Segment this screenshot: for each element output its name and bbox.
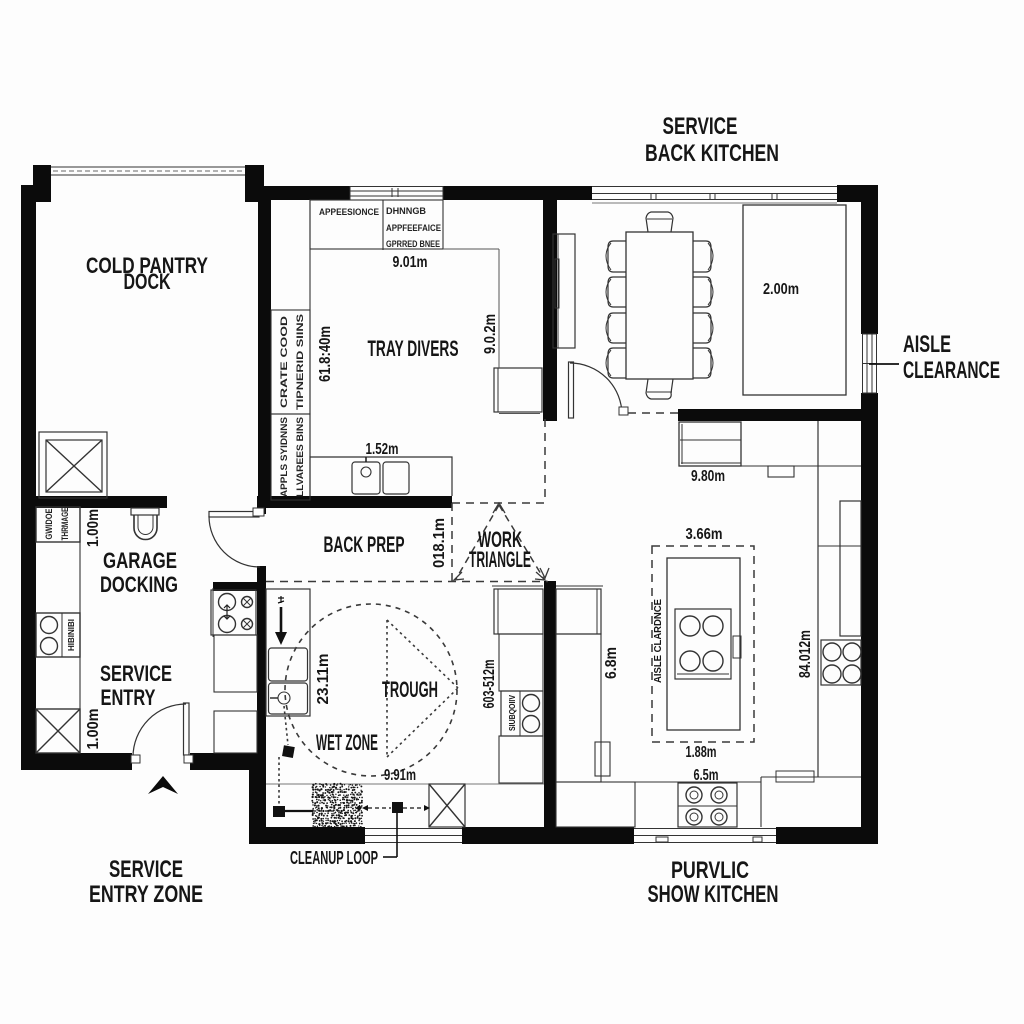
svg-text:BACK PREP: BACK PREP xyxy=(324,532,405,557)
svg-text:AISLE CLARDNCE: AISLE CLARDNCE xyxy=(652,599,664,683)
svg-text:603-512m: 603-512m xyxy=(481,660,498,709)
svg-text:TRIANGLE: TRIANGLE xyxy=(469,547,531,572)
svg-text:TRAY DIVERS: TRAY DIVERS xyxy=(368,336,459,361)
svg-text:SERVICE: SERVICE xyxy=(663,113,738,140)
svg-text:BACK KITCHEN: BACK KITCHEN xyxy=(645,140,779,167)
svg-text:TROUGH: TROUGH xyxy=(382,677,438,702)
svg-text:84.012m: 84.012m xyxy=(797,630,814,678)
svg-text:APPFEEFAICE: APPFEEFAICE xyxy=(386,223,441,234)
svg-text:2.00m: 2.00m xyxy=(763,281,799,298)
svg-text:1.52m: 1.52m xyxy=(366,441,399,458)
svg-text:GARAGE: GARAGE xyxy=(103,548,177,573)
svg-text:ENTRY ZONE: ENTRY ZONE xyxy=(89,881,203,908)
svg-text:TIPNERID SIINS: TIPNERID SIINS xyxy=(295,314,306,410)
svg-text:1.00m: 1.00m xyxy=(85,709,102,750)
svg-text:LLVAREES BINS: LLVAREES BINS xyxy=(295,417,306,497)
svg-text:WET ZONE: WET ZONE xyxy=(316,730,378,755)
svg-text:1.88m: 1.88m xyxy=(686,744,717,761)
svg-text:APPEESIONCE: APPEESIONCE xyxy=(319,207,379,218)
svg-text:9.80m: 9.80m xyxy=(691,468,725,485)
svg-text:CLEANUP LOOP: CLEANUP LOOP xyxy=(290,848,378,868)
svg-text:APPLS SYIDNNS: APPLS SYIDNNS xyxy=(279,417,290,497)
svg-text:CLEARANCE: CLEARANCE xyxy=(903,357,1000,384)
svg-text:1.00m: 1.00m xyxy=(85,509,102,547)
svg-text:SERVICE: SERVICE xyxy=(109,856,183,883)
svg-text:6.5m: 6.5m xyxy=(694,767,719,784)
svg-text:018.1m: 018.1m xyxy=(431,518,448,568)
svg-text:3.66m: 3.66m xyxy=(686,526,723,543)
svg-text:THRMAGE: THRMAGE xyxy=(60,508,71,541)
svg-text:GWIDOE: GWIDOE xyxy=(44,509,55,540)
svg-text:61.8:40m: 61.8:40m xyxy=(317,326,334,382)
svg-text:DOCKING: DOCKING xyxy=(100,572,178,597)
svg-text:6.8m: 6.8m xyxy=(603,647,620,679)
svg-text:9.91m: 9.91m xyxy=(384,767,416,784)
svg-text:SHOW KITCHEN: SHOW KITCHEN xyxy=(648,881,779,908)
svg-text:23.11m: 23.11m xyxy=(315,654,332,705)
svg-text:AISLE: AISLE xyxy=(903,331,951,358)
svg-text:HIBINIBI: HIBINIBI xyxy=(67,619,76,651)
svg-text:DOCK: DOCK xyxy=(124,269,171,294)
svg-text:SIUBQOIIV: SIUBQOIIV xyxy=(507,695,517,731)
svg-text:SERVICE: SERVICE xyxy=(100,661,172,686)
svg-text:9.01m: 9.01m xyxy=(393,254,428,271)
svg-text:CRATE COOD: CRATE COOD xyxy=(279,316,290,408)
svg-text:GPRRED BNEE: GPRRED BNEE xyxy=(386,239,440,250)
svg-text:ENTRY: ENTRY xyxy=(101,685,156,710)
svg-text:DHNNGB: DHNNGB xyxy=(386,206,426,217)
svg-text:PURVLIC: PURVLIC xyxy=(671,857,749,884)
svg-text:9.0.2m: 9.0.2m xyxy=(482,314,499,354)
